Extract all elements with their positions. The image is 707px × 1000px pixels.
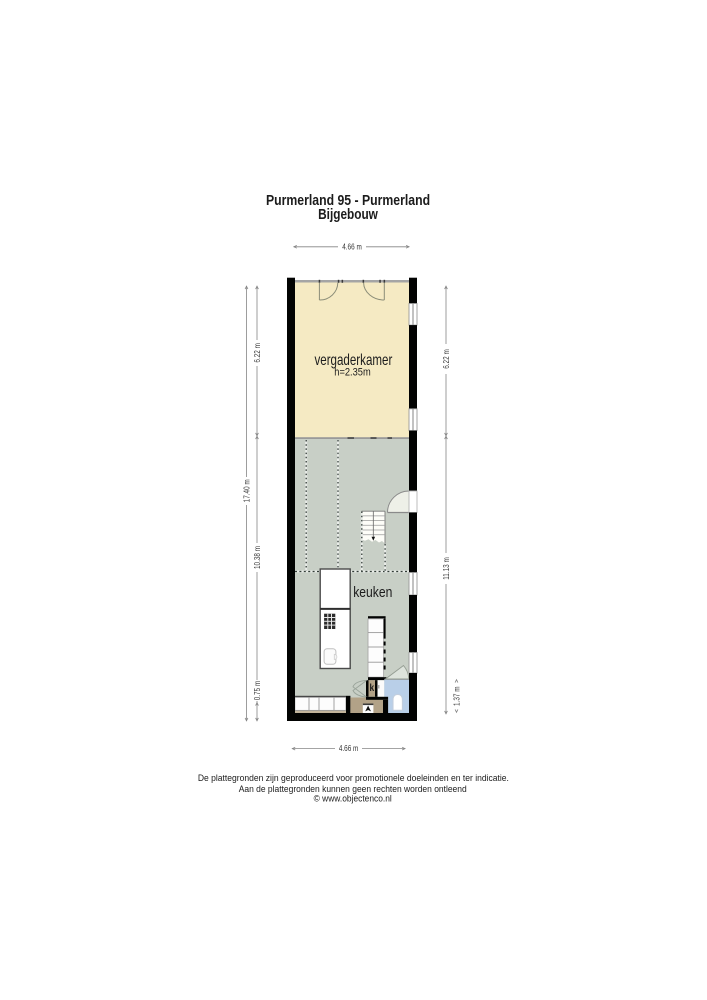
- svg-text:Bijgebouw: Bijgebouw: [318, 206, 378, 222]
- svg-text:11.13 m: 11.13 m: [441, 557, 451, 580]
- svg-text:10.38 m: 10.38 m: [252, 546, 262, 569]
- svg-text:4.66 m: 4.66 m: [339, 743, 359, 753]
- svg-text:vergaderkamer: vergaderkamer: [314, 350, 392, 368]
- svg-text:6.22 m: 6.22 m: [441, 349, 451, 369]
- svg-text:De plattegronden zijn geproduc: De plattegronden zijn geproduceerd voor …: [198, 773, 509, 783]
- svg-text:6.22 m: 6.22 m: [252, 343, 262, 363]
- svg-text:k: k: [369, 682, 374, 694]
- svg-text:0.75 m: 0.75 m: [252, 681, 262, 701]
- svg-text:h=2.35m: h=2.35m: [334, 367, 370, 379]
- svg-text:1.37 m: 1.37 m: [452, 686, 462, 706]
- svg-text:4.66 m: 4.66 m: [342, 242, 362, 252]
- svg-text:© www.objectenco.nl: © www.objectenco.nl: [314, 793, 392, 803]
- svg-text:17.40 m: 17.40 m: [242, 479, 252, 502]
- svg-text:keuken: keuken: [353, 584, 392, 600]
